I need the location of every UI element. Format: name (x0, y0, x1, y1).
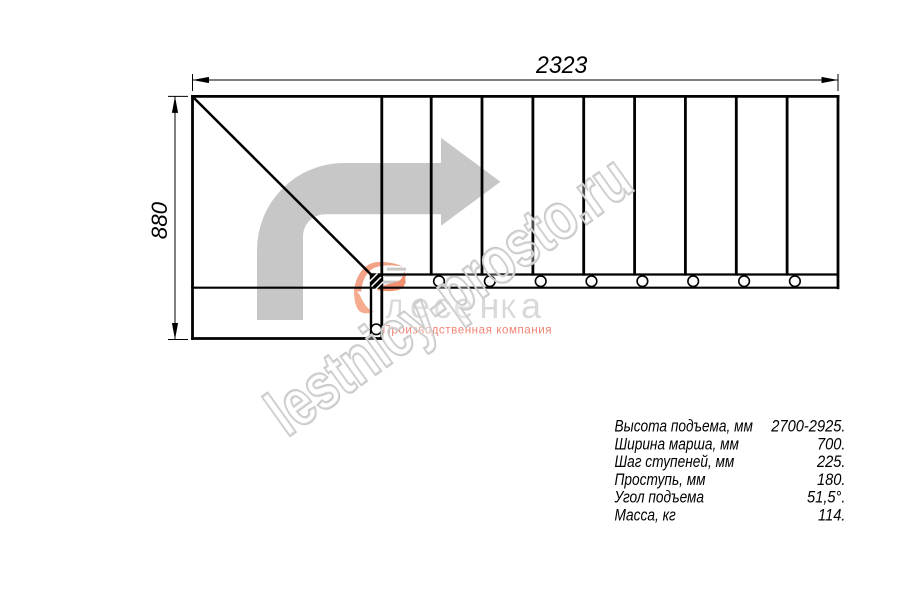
svg-text:Масса, кг: Масса, кг (615, 506, 677, 524)
svg-text:225.: 225. (816, 453, 845, 471)
svg-text:180.: 180. (817, 471, 846, 489)
svg-text:Шаг ступеней, мм: Шаг ступеней, мм (615, 453, 735, 471)
svg-text:114.: 114. (818, 507, 845, 525)
svg-text:Проступь, мм: Проступь, мм (615, 471, 707, 489)
svg-text:Угол подъема: Угол подъема (614, 489, 704, 507)
svg-text:Ширина марша, мм: Ширина марша, мм (615, 435, 740, 453)
svg-text:2700-2925.: 2700-2925. (770, 418, 845, 436)
svg-text:51,5°.: 51,5°. (807, 489, 845, 507)
svg-text:880: 880 (147, 201, 172, 239)
svg-text:700.: 700. (817, 436, 846, 454)
svg-text:2323: 2323 (535, 52, 587, 79)
svg-text:Высота подъема, мм: Высота подъема, мм (615, 417, 754, 435)
